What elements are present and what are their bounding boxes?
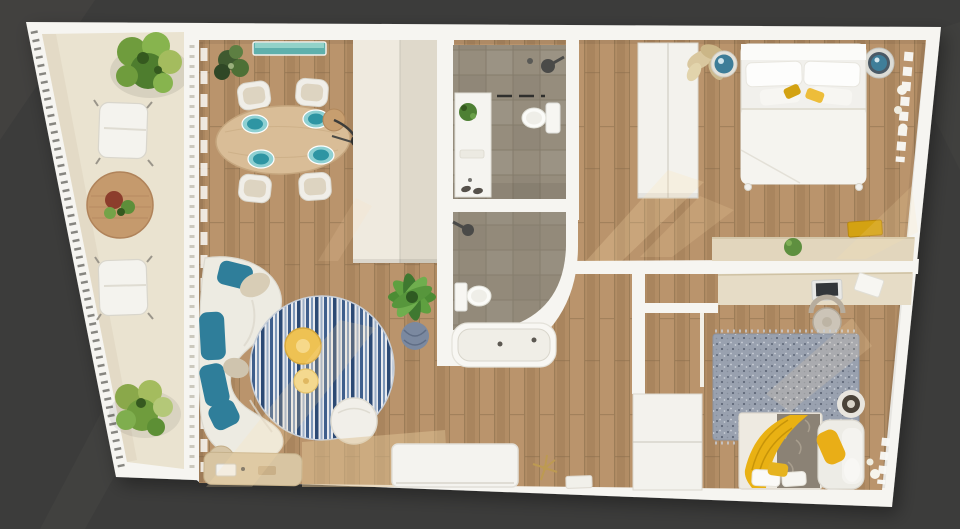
kitchen-island [392, 444, 518, 487]
teal-sideboard [253, 42, 326, 55]
entry-threshold [566, 476, 592, 489]
round-pouf [837, 390, 865, 418]
balcony-glass-door [184, 32, 200, 483]
terrace-table [87, 172, 153, 238]
double-bed [741, 44, 866, 191]
bedroom2-door-leaf [700, 313, 704, 387]
single-bed [739, 413, 822, 489]
tall-cabinet [353, 40, 437, 264]
bathtub [452, 323, 556, 367]
bathroom-vanity [455, 93, 491, 197]
floor-plan-render [0, 0, 960, 529]
bedroom2-entry-wall [632, 274, 645, 394]
bathroom-1 [453, 40, 579, 220]
nightstand-left [711, 51, 737, 77]
hallway-south-wall [566, 259, 919, 274]
kitchen-counter [204, 452, 303, 486]
floor-plan-canvas [0, 0, 960, 529]
armchair [814, 420, 864, 489]
bedroom2-wardrobe [633, 394, 702, 490]
nightstand-right [864, 48, 894, 78]
bedroom2-north-wall [645, 303, 718, 313]
lounge-chair-top [94, 100, 153, 166]
lounge-chair-bottom [95, 256, 153, 320]
